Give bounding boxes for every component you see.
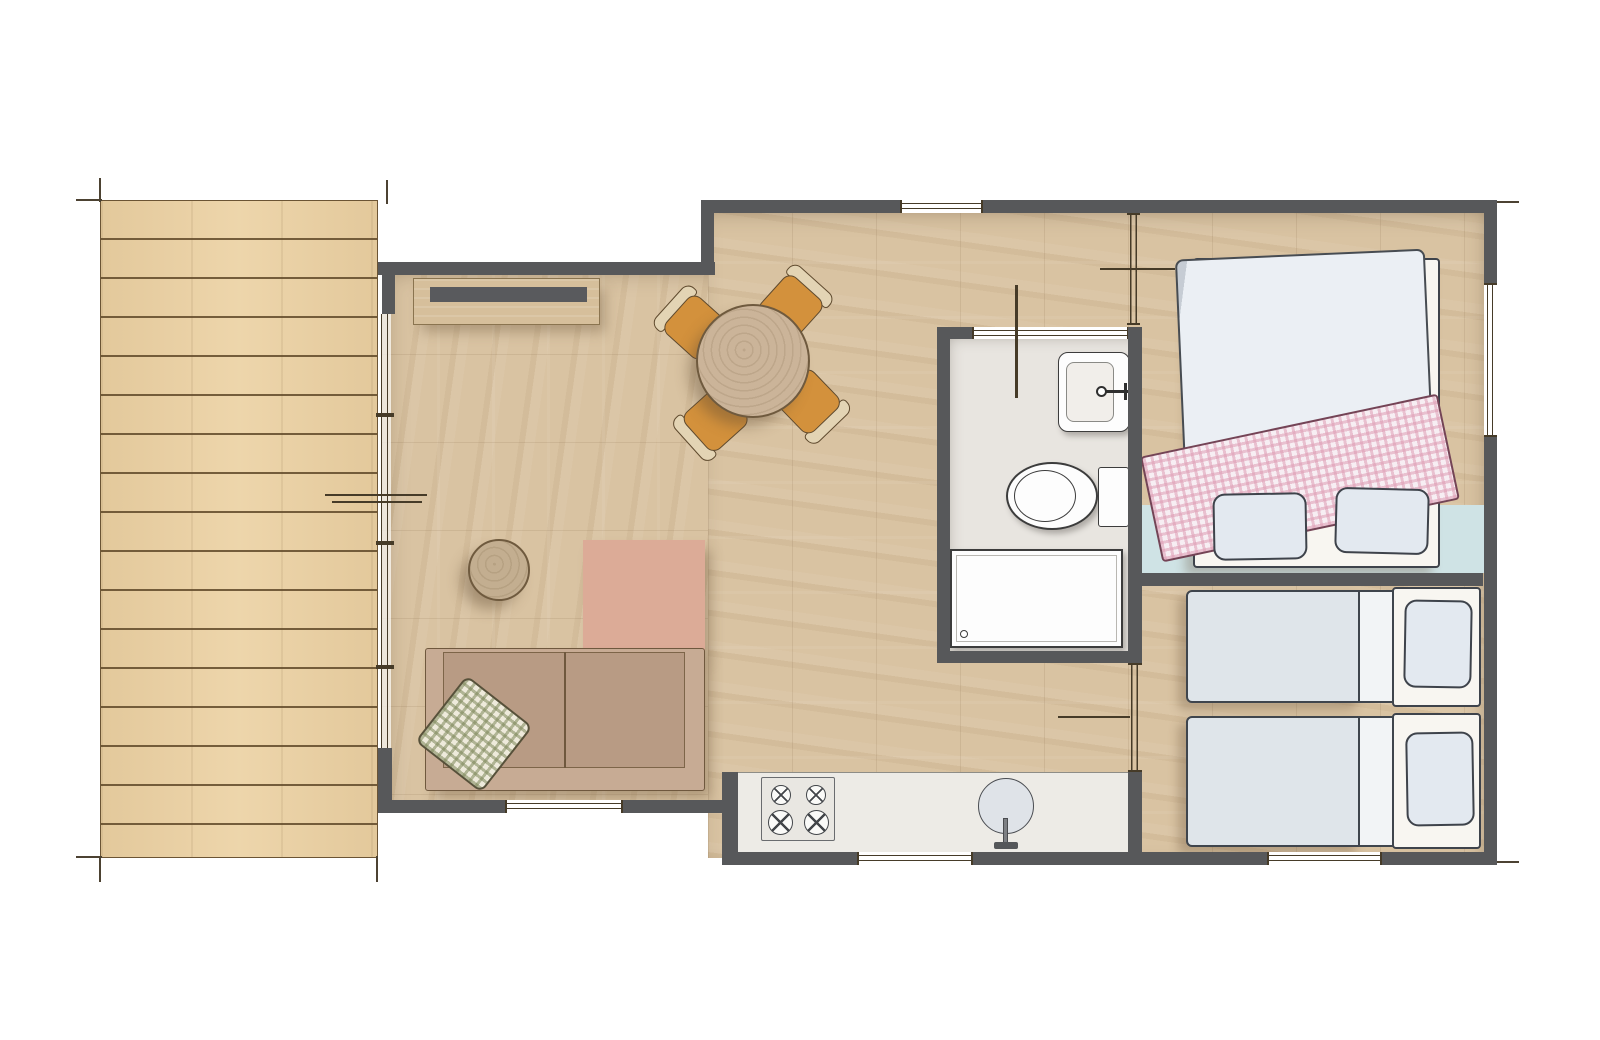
- washbasin-faucet-knob: [1096, 386, 1107, 397]
- shower-tray-inner: [956, 555, 1117, 642]
- sliding-door-track: [332, 501, 422, 503]
- wall-right: [1484, 437, 1497, 865]
- wall-bedroom-divider: [1142, 573, 1483, 586]
- sliding-glass-wall: [379, 314, 391, 748]
- single-bed-mattress: [1186, 716, 1364, 847]
- wall-bottom: [973, 852, 1267, 865]
- glass-mullion: [376, 413, 394, 417]
- wall-top-main: [983, 200, 1497, 213]
- wall-top-living: [378, 262, 715, 275]
- wall-bathroom-right: [1128, 327, 1142, 663]
- wall-top-main: [701, 200, 900, 213]
- single-bed-sheet-fold: [1358, 590, 1394, 703]
- twin-bedroom-door-swing: [1058, 716, 1130, 718]
- pillow: [1403, 599, 1473, 688]
- kitchen-faucet-handle: [994, 842, 1018, 849]
- wall-living-bottom: [378, 800, 505, 813]
- entry-door-swing: [1100, 268, 1175, 270]
- deck-terrace: [100, 200, 378, 858]
- floor-plan-canvas: [0, 0, 1600, 1040]
- glass-mullion: [376, 541, 394, 545]
- pillow: [1334, 487, 1430, 555]
- window-kitchen: [857, 852, 973, 865]
- burner: [804, 810, 829, 835]
- pillow: [1405, 731, 1475, 826]
- wall-kitchen-right: [1128, 772, 1142, 852]
- glass-mullion: [376, 665, 394, 669]
- wall-bottom: [1382, 852, 1497, 865]
- single-bed-mattress: [1186, 590, 1364, 703]
- wall-bottom: [722, 852, 857, 865]
- ottoman-table: [583, 540, 705, 655]
- bathroom-glazed-door: [972, 327, 1129, 339]
- sliding-door-track: [325, 494, 427, 496]
- sofa-seat-divider: [564, 652, 566, 768]
- window-top: [900, 200, 983, 213]
- toilet-seat: [1014, 470, 1076, 522]
- wall-bathroom-bottom: [937, 651, 1142, 663]
- single-bed-sheet-fold: [1358, 716, 1394, 847]
- window-twin-bedroom: [1267, 852, 1382, 865]
- wall-kitchen-corner: [722, 772, 738, 865]
- wall-living-bottom: [623, 800, 724, 813]
- pillow: [1212, 492, 1307, 561]
- bathroom-door-leaf: [1015, 285, 1018, 398]
- dimension-tick: [1497, 201, 1519, 203]
- twin-bedroom-door-leaf: [1128, 663, 1142, 772]
- window-right: [1484, 283, 1497, 437]
- tv: [430, 287, 587, 302]
- side-table: [468, 539, 530, 601]
- toilet-cistern: [1098, 467, 1129, 527]
- window-living-room: [505, 800, 623, 813]
- wall-corner-stub-left: [382, 262, 395, 314]
- shower-drain: [960, 630, 968, 638]
- dimension-tick: [99, 178, 101, 202]
- wall-living-corner: [378, 748, 392, 812]
- burner: [806, 785, 826, 805]
- burner: [768, 810, 793, 835]
- dimension-tick: [376, 856, 378, 882]
- dining-table: [696, 304, 810, 418]
- dimension-tick: [1497, 861, 1519, 863]
- burner: [771, 785, 791, 805]
- hob-stove: [761, 777, 835, 841]
- dimension-tick: [99, 856, 101, 882]
- kitchen-faucet-stem: [1003, 818, 1008, 844]
- dimension-tick: [386, 180, 388, 204]
- wall-right: [1484, 200, 1497, 283]
- wall-bathroom-left: [937, 327, 950, 663]
- wall-bathroom-top: [937, 327, 972, 339]
- washbasin-faucet-cross: [1124, 383, 1127, 400]
